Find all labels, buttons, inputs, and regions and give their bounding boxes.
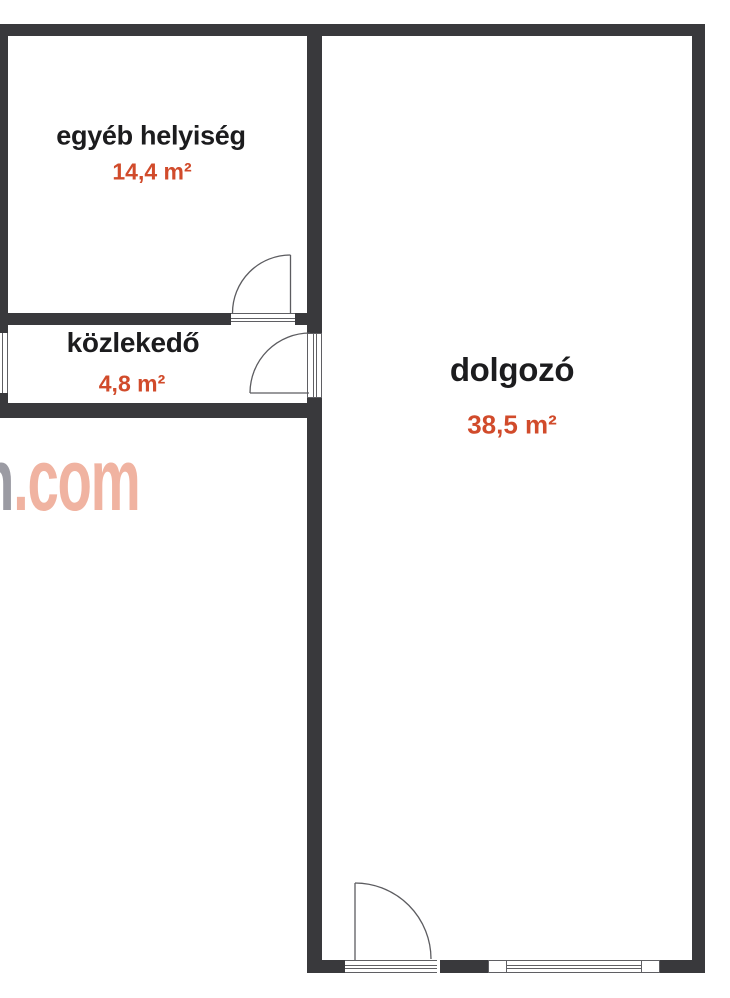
window-bottom-dolgozo <box>507 960 641 973</box>
door-arc-egyeb-helyiseg <box>233 255 291 313</box>
window-frame-cap-right <box>641 960 660 973</box>
wall-bottom-mid <box>440 960 488 973</box>
door-threshold-egyeb-helyiseg <box>231 313 295 325</box>
room-name-egyeb-helyiseg: egyéb helyiség <box>56 121 245 152</box>
wall-bottom-right <box>660 960 705 973</box>
door-jamb-kozlekedo-dolgozo <box>307 333 322 398</box>
floorplan: egyéb helyiség 14,4 m² közlekedő 4,8 m² … <box>0 0 730 998</box>
room-name-kozlekedo: közlekedő <box>67 327 200 359</box>
wall-top <box>0 24 705 36</box>
watermark: n.com <box>0 436 139 524</box>
room-name-dolgozo: dolgozó <box>450 351 574 389</box>
wall-vertical-upper <box>307 24 322 333</box>
watermark-prefix: n <box>0 430 13 529</box>
watermark-suffix: .com <box>13 430 139 529</box>
door-arc-kozlekedo-dolgozo <box>250 333 310 393</box>
room-area-dolgozo: 38,5 m² <box>467 410 557 441</box>
door-threshold-dolgozo <box>345 960 437 973</box>
door-arc-dolgozo <box>355 883 431 959</box>
wall-below-kozlekedo <box>0 403 322 418</box>
wall-vertical-lower <box>307 398 322 973</box>
room-area-egyeb-helyiseg: 14,4 m² <box>112 159 191 186</box>
window-frame-cap-left <box>488 960 507 973</box>
wall-bottom-left <box>307 960 345 973</box>
wall-left-upper <box>0 24 8 333</box>
room-area-kozlekedo: 4,8 m² <box>99 371 165 398</box>
wall-right <box>692 24 705 973</box>
window-left-kozlekedo <box>0 333 8 393</box>
wall-mid-left <box>0 313 231 325</box>
